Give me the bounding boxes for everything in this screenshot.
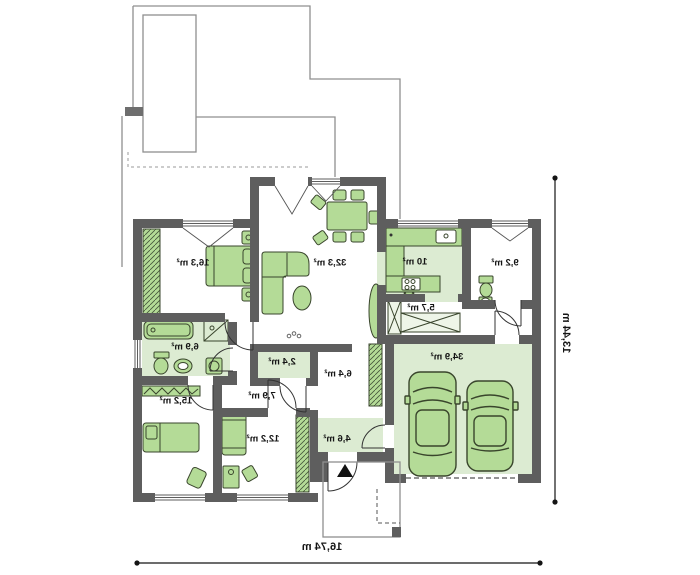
entrance-arrow-icon xyxy=(337,464,353,477)
porch-dashed xyxy=(377,489,400,523)
room-label-bedroom-2: 15,2 m² xyxy=(160,396,193,407)
room-label-vestibule: 4,6 m² xyxy=(323,434,350,445)
room-label-garage: 34,9 m² xyxy=(431,352,464,363)
room-label-bathroom-2: 9,2 m² xyxy=(491,258,518,269)
window xyxy=(492,221,528,226)
dimension-width-label: 16,74 m xyxy=(302,541,342,553)
dining-table xyxy=(327,202,367,230)
room-label-living-room: 32,3 m² xyxy=(314,258,347,269)
room-label-wc: 2,4 m² xyxy=(268,357,295,368)
room-label-kitchen: 10 m² xyxy=(403,257,428,268)
pantry-wardrobe xyxy=(401,313,460,332)
washbasin xyxy=(174,359,192,373)
desk-chair xyxy=(241,465,258,482)
window xyxy=(135,340,140,368)
porch-wall-stub xyxy=(392,527,401,537)
pantry-cabinet xyxy=(388,300,401,334)
wardrobe-hall xyxy=(369,344,382,406)
window xyxy=(312,179,340,184)
toilet xyxy=(479,276,493,297)
window xyxy=(155,495,205,500)
dimension-height-label: 13,44 m xyxy=(560,313,572,353)
desk xyxy=(223,466,239,488)
bathtub xyxy=(144,321,193,339)
room-label-pantry: 5,7 m² xyxy=(407,303,434,314)
car xyxy=(405,372,460,476)
sofa xyxy=(222,413,246,455)
kitchen-sink xyxy=(436,230,456,243)
armchair xyxy=(186,466,207,489)
wardrobe-entry xyxy=(296,415,309,492)
window xyxy=(237,495,288,500)
coffee-table xyxy=(293,286,311,310)
floor-plan-canvas xyxy=(0,0,700,575)
double-bed xyxy=(206,246,255,286)
room-label-bedroom-1: 16,3 m² xyxy=(177,258,210,269)
room-label-bathroom-1: 6,9 m² xyxy=(171,342,198,353)
floor-plan: 16,3 m² 32,3 m² 10 m² 9,2 m² 5,7 m² 6,9 … xyxy=(0,0,700,575)
single-bed xyxy=(143,423,199,452)
toilet xyxy=(154,352,169,374)
room-label-corridor: 7,9 m² xyxy=(248,391,275,402)
roof-overhang-dashed xyxy=(128,152,310,167)
roof-wall-stub xyxy=(125,107,143,116)
car xyxy=(463,381,518,471)
door-garage-passage xyxy=(495,311,519,335)
wardrobe-bedroom-1 xyxy=(143,229,160,315)
room-label-hall: 6,4 m² xyxy=(324,369,351,380)
decor-dots xyxy=(287,332,301,338)
window xyxy=(183,221,233,226)
room-label-bedroom-3: 12,2 m² xyxy=(247,434,280,445)
window xyxy=(398,221,458,226)
wardrobe-bedroom-2 xyxy=(142,386,200,396)
terrace-door-swing xyxy=(275,186,308,214)
washing-machine xyxy=(206,358,222,374)
door-room-9-2 xyxy=(495,300,521,326)
